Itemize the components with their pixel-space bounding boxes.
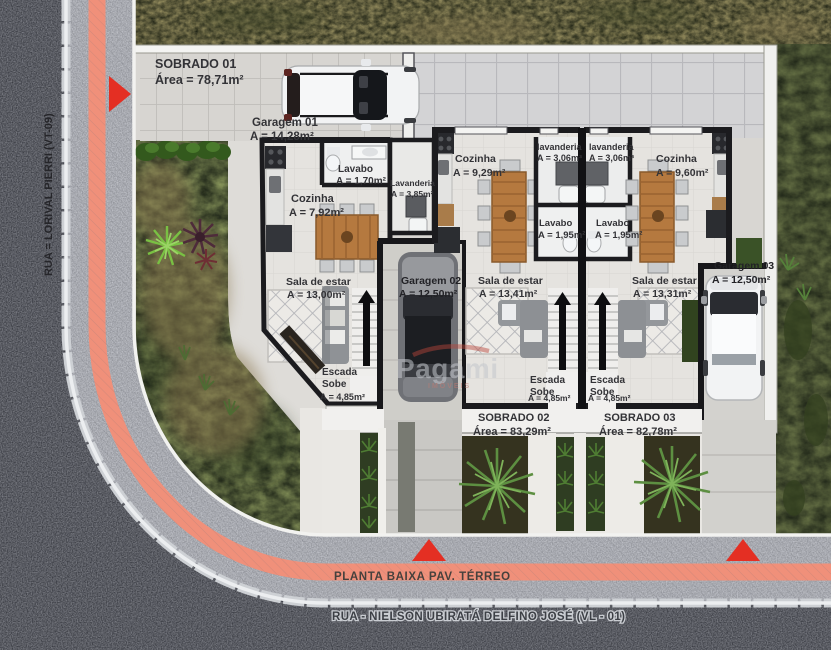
svg-text:Cozinha: Cozinha bbox=[291, 193, 335, 205]
svg-text:A = 9,29m²: A = 9,29m² bbox=[453, 167, 506, 179]
svg-text:lavanderia: lavanderia bbox=[537, 142, 583, 152]
svg-text:Lavabo: Lavabo bbox=[539, 218, 572, 229]
svg-text:A = 3,06m³: A = 3,06m³ bbox=[537, 153, 582, 163]
svg-text:A = 14,28m²: A = 14,28m² bbox=[250, 131, 314, 143]
svg-text:Sobe: Sobe bbox=[322, 379, 347, 390]
svg-text:Sala de estar: Sala de estar bbox=[632, 275, 697, 287]
svg-text:Área = 82,78m²: Área = 82,78m² bbox=[599, 425, 677, 438]
svg-text:IMÓVEIS: IMÓVEIS bbox=[428, 381, 471, 390]
svg-text:Garagem 01: Garagem 01 bbox=[252, 117, 318, 129]
svg-text:Área = 78,71m²: Área = 78,71m² bbox=[155, 72, 244, 87]
svg-text:A = 3,06m³: A = 3,06m³ bbox=[589, 153, 634, 163]
svg-text:Lavabo: Lavabo bbox=[596, 218, 629, 229]
svg-text:A = 4,85m²: A = 4,85m² bbox=[528, 393, 571, 403]
svg-text:SOBRADO 03: SOBRADO 03 bbox=[604, 412, 676, 424]
svg-text:A = 4,85m²: A = 4,85m² bbox=[588, 393, 631, 403]
svg-text:A = 4,85m²: A = 4,85m² bbox=[320, 392, 365, 402]
svg-text:Área = 83,29m²: Área = 83,29m² bbox=[473, 425, 551, 438]
svg-text:lavanderia: lavanderia bbox=[589, 142, 635, 152]
svg-text:RUA - NIELSON UBIRATÁ DELFINO: RUA - NIELSON UBIRATÁ DELFINO JOSÉ (VL -… bbox=[332, 610, 625, 623]
svg-text:Sala de estar: Sala de estar bbox=[478, 275, 543, 287]
svg-text:Garagem 03: Garagem 03 bbox=[714, 260, 774, 272]
svg-text:A = 3,85m²: A = 3,85m² bbox=[391, 189, 434, 199]
svg-text:RUA = LORIVAL PIERRI (VT-09): RUA = LORIVAL PIERRI (VT-09) bbox=[43, 113, 55, 276]
svg-text:SOBRADO 01: SOBRADO 01 bbox=[155, 57, 236, 71]
svg-text:Escada: Escada bbox=[590, 375, 625, 386]
svg-text:SOBRADO 02: SOBRADO 02 bbox=[478, 412, 550, 424]
svg-text:PLANTA BAIXA PAV. TÉRREO: PLANTA BAIXA PAV. TÉRREO bbox=[334, 570, 511, 583]
svg-text:Pagami: Pagami bbox=[396, 353, 499, 384]
svg-text:Lavabo: Lavabo bbox=[338, 164, 373, 175]
svg-text:Garagem 02: Garagem 02 bbox=[401, 275, 461, 287]
svg-text:Cozinha: Cozinha bbox=[455, 153, 496, 165]
svg-text:A = 13,41m²: A = 13,41m² bbox=[479, 288, 538, 300]
svg-text:A = 13,00m²: A = 13,00m² bbox=[287, 289, 346, 301]
svg-text:A = 12,50m²: A = 12,50m² bbox=[712, 274, 771, 286]
svg-text:Escada: Escada bbox=[530, 375, 565, 386]
svg-text:Sala de estar: Sala de estar bbox=[286, 276, 351, 288]
svg-text:A = 7,92m²: A = 7,92m² bbox=[289, 207, 344, 219]
svg-text:A = 9,60m²: A = 9,60m² bbox=[656, 167, 709, 179]
svg-text:A = 1,95m²: A = 1,95m² bbox=[595, 230, 642, 241]
svg-text:A = 13,31m²: A = 13,31m² bbox=[633, 288, 692, 300]
svg-text:A = 1,70m²: A = 1,70m² bbox=[336, 176, 387, 187]
svg-text:A = 1,95m²: A = 1,95m² bbox=[538, 230, 585, 241]
svg-text:Cozinha: Cozinha bbox=[656, 153, 697, 165]
svg-text:Escada: Escada bbox=[322, 367, 357, 378]
svg-text:A = 12,50m²: A = 12,50m² bbox=[399, 288, 458, 300]
svg-text:Lavanderia: Lavanderia bbox=[390, 178, 435, 188]
